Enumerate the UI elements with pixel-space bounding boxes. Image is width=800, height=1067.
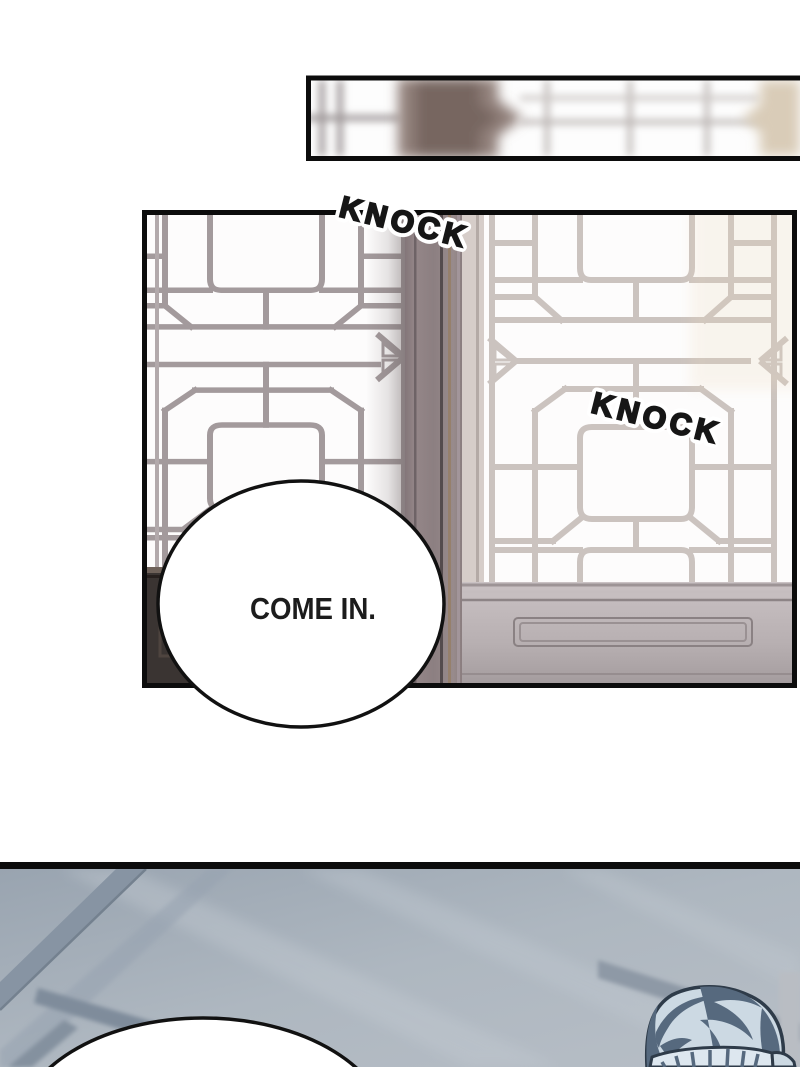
- svg-text:COME IN.: COME IN.: [250, 591, 376, 626]
